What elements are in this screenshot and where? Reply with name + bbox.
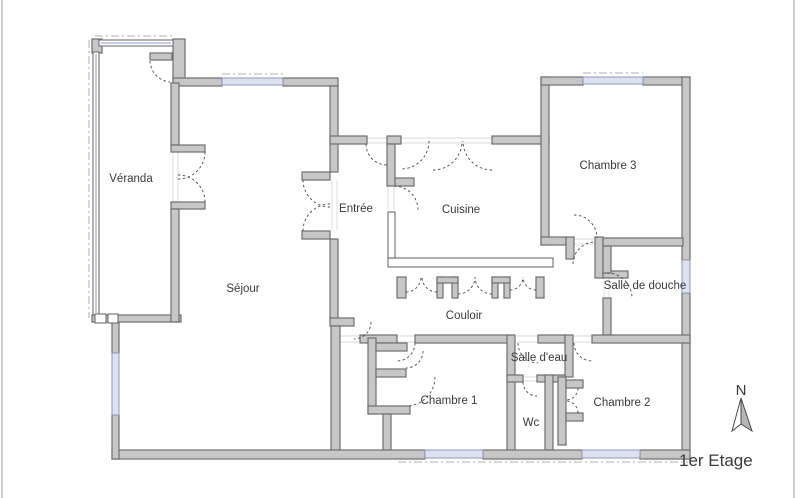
door-swing-arc: [523, 277, 536, 290]
wall-segment: [376, 343, 407, 351]
door-swing-arc: [510, 277, 523, 290]
door-swing-arc: [178, 175, 205, 202]
wall-segment: [558, 377, 566, 445]
wall-segment: [483, 450, 582, 459]
wall-segment: [173, 39, 185, 84]
window: [112, 353, 119, 415]
wall-segment: [368, 406, 410, 414]
north-arrow-left-half: [732, 398, 741, 431]
north-arrow: N: [732, 382, 752, 431]
window: [582, 450, 640, 458]
floor-title-layer: 1er Etage: [679, 451, 753, 470]
room-label-salle-d-eau: Salle d'eau: [511, 352, 568, 364]
wall-segment: [330, 318, 354, 326]
wall-segment: [541, 77, 583, 85]
wall-segment: [112, 450, 425, 459]
wall-segment: [171, 83, 179, 145]
door-swing-arc: [422, 277, 437, 292]
wall-segment: [682, 293, 690, 459]
door-swing-arc: [303, 180, 330, 207]
wall-segment: [437, 277, 458, 283]
room-label-chambre-1: Chambre 1: [421, 395, 478, 407]
wall-segment: [566, 380, 583, 388]
room-label-chambre-3: Chambre 3: [580, 160, 637, 172]
room-label-couloir: Couloir: [446, 310, 483, 322]
door-swing-arc: [366, 144, 387, 165]
wall-segment: [682, 77, 690, 260]
door-swing-arc: [573, 242, 595, 264]
door-swing-arc: [303, 204, 330, 231]
wall-segment: [595, 237, 603, 278]
room-label-cuisine: Cuisine: [442, 204, 480, 216]
wall-segment: [302, 172, 330, 180]
door-swing-arc: [406, 277, 421, 292]
wall-segment: [360, 335, 397, 343]
room-label-wc: Wc: [523, 417, 540, 429]
wall-segment: [603, 298, 611, 335]
room-label-chambre-2: Chambre 2: [594, 397, 651, 409]
wall-segment: [541, 77, 549, 245]
door-swing-arc: [574, 215, 597, 238]
door-swing-arc: [401, 141, 429, 169]
floor-label: 1er Etage: [679, 451, 753, 470]
door-swing-arc: [406, 351, 423, 368]
wall-segment: [397, 277, 406, 298]
wall-segment: [603, 246, 611, 273]
north-label: N: [736, 382, 747, 399]
wall-segment: [302, 231, 330, 239]
wall-segment: [603, 238, 683, 246]
door-swing-arc: [433, 141, 462, 170]
wall-segment: [330, 239, 338, 322]
wall-segment: [545, 375, 553, 450]
door-swing-arc: [458, 277, 475, 294]
wall-segment: [383, 414, 391, 453]
wall-segment: [112, 322, 119, 353]
thin-wall-segment: [388, 258, 553, 267]
wall-segment: [387, 136, 401, 144]
room-label-sejour: Séjour: [226, 283, 259, 295]
page-border-lines: [2, 0, 794, 498]
wall-segment: [171, 145, 205, 152]
wall-segment: [173, 78, 222, 86]
wall-segment: [536, 277, 544, 298]
wall-segment: [387, 144, 395, 186]
wall-segment: [566, 237, 574, 259]
wall-segment: [330, 136, 367, 144]
door-swing-arc: [150, 61, 170, 82]
wall-segment: [331, 326, 340, 453]
wall-segment: [415, 335, 509, 343]
wall-segment: [330, 86, 338, 172]
thin-wall-segment: [108, 314, 118, 323]
wall-segment: [566, 413, 583, 421]
door-swing-arc: [475, 277, 492, 294]
wall-segment: [112, 415, 119, 459]
door-swing-arc: [566, 388, 578, 400]
window: [425, 450, 483, 458]
wall-segment: [492, 277, 510, 283]
door-swing-arc: [394, 186, 418, 210]
wall-segment: [541, 237, 566, 245]
door-swing-arc: [574, 343, 592, 361]
room-label-salle-de-douche: Salle de douche: [604, 280, 686, 292]
wall-segment: [507, 375, 523, 382]
wall-segment: [283, 78, 338, 86]
wall-segment: [368, 338, 376, 414]
wall-segment: [592, 335, 690, 343]
door-swing-arc: [178, 152, 205, 179]
north-arrow-right-half: [741, 398, 752, 431]
room-label-veranda: Véranda: [109, 173, 153, 185]
door-swing-arc: [523, 382, 537, 396]
thin-wall-segment: [95, 314, 106, 323]
room-label-entree: Entrée: [339, 203, 373, 215]
wall-segment: [171, 202, 205, 209]
floor-plan-page: VérandaSéjourEntréeCuisineChambre 3Salle…: [0, 0, 800, 498]
door-swing-arc: [463, 141, 492, 170]
wall-segment: [171, 209, 179, 322]
wall-segment: [376, 369, 406, 377]
wall-segment: [150, 53, 172, 60]
window: [583, 77, 643, 84]
floor-plan: VérandaSéjourEntréeCuisineChambre 3Salle…: [0, 0, 800, 498]
wall-segment: [538, 335, 565, 343]
wall-segment: [395, 178, 414, 186]
door-swing-arc: [566, 401, 578, 413]
thin-wall-segment: [388, 212, 395, 258]
window: [222, 78, 283, 85]
